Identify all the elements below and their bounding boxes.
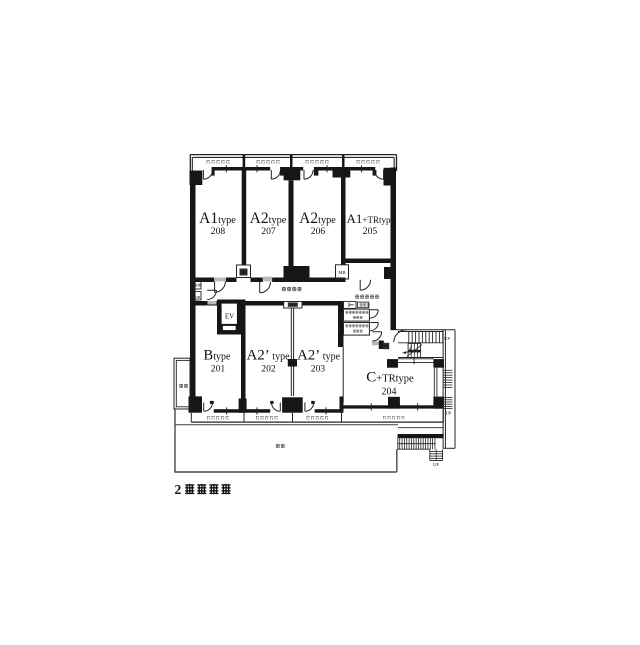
svg-text:A2type: A2type (250, 210, 287, 227)
svg-text:201: 201 (211, 364, 226, 375)
svg-text:203: 203 (311, 364, 326, 375)
svg-text:MB: MB (289, 302, 296, 307)
svg-text:UP: UP (433, 462, 439, 467)
svg-text:UP: UP (444, 336, 450, 341)
svg-text:205: 205 (363, 226, 378, 237)
svg-text:A2type: A2type (299, 210, 336, 227)
svg-text:207: 207 (261, 226, 276, 237)
svg-text:A1type: A1type (199, 210, 236, 227)
svg-text:202: 202 (261, 364, 276, 375)
svg-text:EV: EV (225, 313, 234, 321)
svg-text:A1+TRtype: A1+TRtype (347, 211, 395, 226)
svg-text:MB: MB (383, 344, 390, 349)
svg-text:MB: MB (338, 270, 345, 275)
svg-text:UP: UP (445, 411, 451, 416)
svg-text:A2’ type: A2’ type (246, 348, 290, 364)
svg-text:C+TRtype: C+TRtype (366, 370, 414, 386)
svg-text:MB: MB (194, 295, 201, 300)
svg-text:2: 2 (175, 482, 182, 497)
svg-text:204: 204 (382, 387, 397, 398)
svg-text:MB: MB (240, 270, 247, 275)
svg-text:A2’ type: A2’ type (297, 348, 341, 364)
svg-text:Btype: Btype (204, 348, 231, 364)
svg-text:208: 208 (211, 226, 226, 237)
svg-text:206: 206 (311, 226, 326, 237)
